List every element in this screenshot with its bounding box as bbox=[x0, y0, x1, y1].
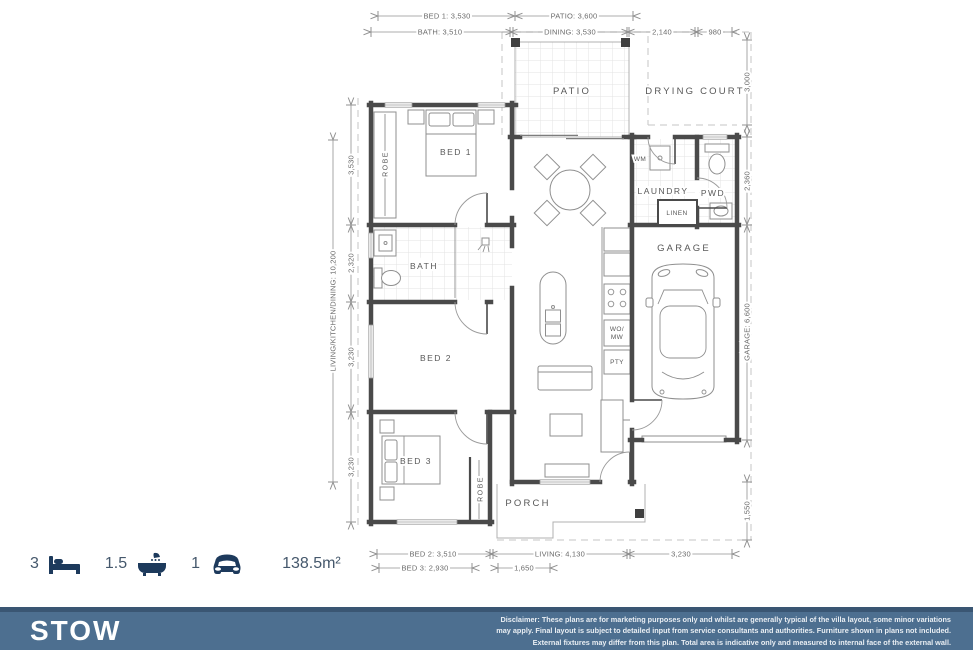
bath-count: 1.5 bbox=[105, 555, 127, 573]
footer: STOW Disclaimer: These plans are for mar… bbox=[0, 607, 973, 650]
dim-2320: 2,320 bbox=[347, 253, 356, 273]
label-porch: PORCH bbox=[505, 498, 550, 509]
dim-3230-bottom: 3,230 bbox=[671, 550, 691, 559]
bed1-furniture bbox=[408, 110, 494, 176]
car bbox=[646, 264, 720, 399]
label-robe3: ROBE bbox=[478, 476, 485, 502]
label-linen: LINEN bbox=[666, 210, 687, 217]
car-count: 1 bbox=[191, 555, 200, 573]
dim-bed3-width: BED 3: 2,930 bbox=[401, 564, 448, 573]
label-bed1: BED 1 bbox=[440, 147, 472, 157]
floor-plan-page: BED 1: 3,530 PATIO: 3,600 BATH: 3,510 DI… bbox=[0, 0, 973, 650]
dim-bed2-width: BED 2: 3,510 bbox=[409, 550, 456, 559]
garage-door-panel bbox=[642, 436, 726, 442]
dim-3530: 3,530 bbox=[347, 155, 356, 175]
label-wall-oven: WO/ bbox=[610, 326, 624, 333]
label-patio: PATIO bbox=[553, 86, 591, 97]
kitchen-island bbox=[540, 272, 566, 344]
dim-dining-width: DINING: 3,530 bbox=[544, 28, 596, 37]
area-value: 138.5m² bbox=[282, 555, 341, 573]
plan-title: STOW bbox=[30, 615, 121, 647]
disclaimer-line-1: Disclaimer: These plans are for marketin… bbox=[496, 614, 951, 625]
car-icon bbox=[210, 553, 244, 575]
porch-post bbox=[635, 509, 644, 518]
dim-1650: 1,650 bbox=[514, 564, 534, 573]
summary-bar: 3 1.5 1 138.5m² bbox=[30, 548, 351, 580]
label-bed3: BED 3 bbox=[400, 456, 432, 466]
label-bed2: BED 2 bbox=[420, 353, 452, 363]
bed-count: 3 bbox=[30, 555, 39, 573]
disclaimer-line-3: External fixtures may differ from this p… bbox=[496, 637, 951, 648]
dim-bed1-width: BED 1: 3,530 bbox=[423, 12, 470, 21]
dim-2360: 2,360 bbox=[743, 171, 752, 191]
dim-living-width: LIVING: 4,130 bbox=[535, 550, 585, 559]
dim-2140: 2,140 bbox=[652, 28, 672, 37]
label-garage: GARAGE bbox=[657, 243, 711, 254]
label-microwave: MW bbox=[611, 334, 624, 341]
kitchen-bench bbox=[602, 227, 630, 420]
dim-1550: 1,550 bbox=[743, 501, 752, 521]
dim-living-overall: LIVING/KITCHEN/DINING: 10,200 bbox=[329, 251, 338, 372]
bed-icon bbox=[49, 553, 81, 575]
dim-bath-width: BATH: 3,510 bbox=[418, 28, 463, 37]
laundry-fixtures bbox=[650, 146, 670, 170]
label-drying-court: DRYING COURT bbox=[645, 86, 744, 97]
dining-set bbox=[534, 154, 605, 225]
disclaimer-line-2: may apply. Final layout is subject to de… bbox=[496, 625, 951, 636]
bath-icon bbox=[137, 552, 167, 576]
label-robe1: ROBE bbox=[383, 151, 390, 177]
dim-3230-left-a: 3,230 bbox=[347, 347, 356, 367]
disclaimer: Disclaimer: These plans are for marketin… bbox=[496, 614, 951, 648]
label-pwd: PWD bbox=[701, 188, 725, 198]
label-wm: WM bbox=[634, 156, 646, 163]
label-laundry: LAUNDRY bbox=[638, 186, 689, 196]
patio-post bbox=[621, 38, 630, 47]
dim-patio-width: PATIO: 3,600 bbox=[551, 12, 598, 21]
label-bath: BATH bbox=[410, 261, 438, 271]
label-pantry: PTY bbox=[610, 359, 624, 366]
dim-3230-left-b: 3,230 bbox=[347, 457, 356, 477]
dim-980: 980 bbox=[708, 28, 721, 37]
patio-post bbox=[511, 38, 520, 47]
living-furniture bbox=[538, 366, 623, 477]
dim-garage-depth: GARAGE: 6,600 bbox=[743, 303, 752, 361]
porch-outline bbox=[497, 484, 645, 538]
